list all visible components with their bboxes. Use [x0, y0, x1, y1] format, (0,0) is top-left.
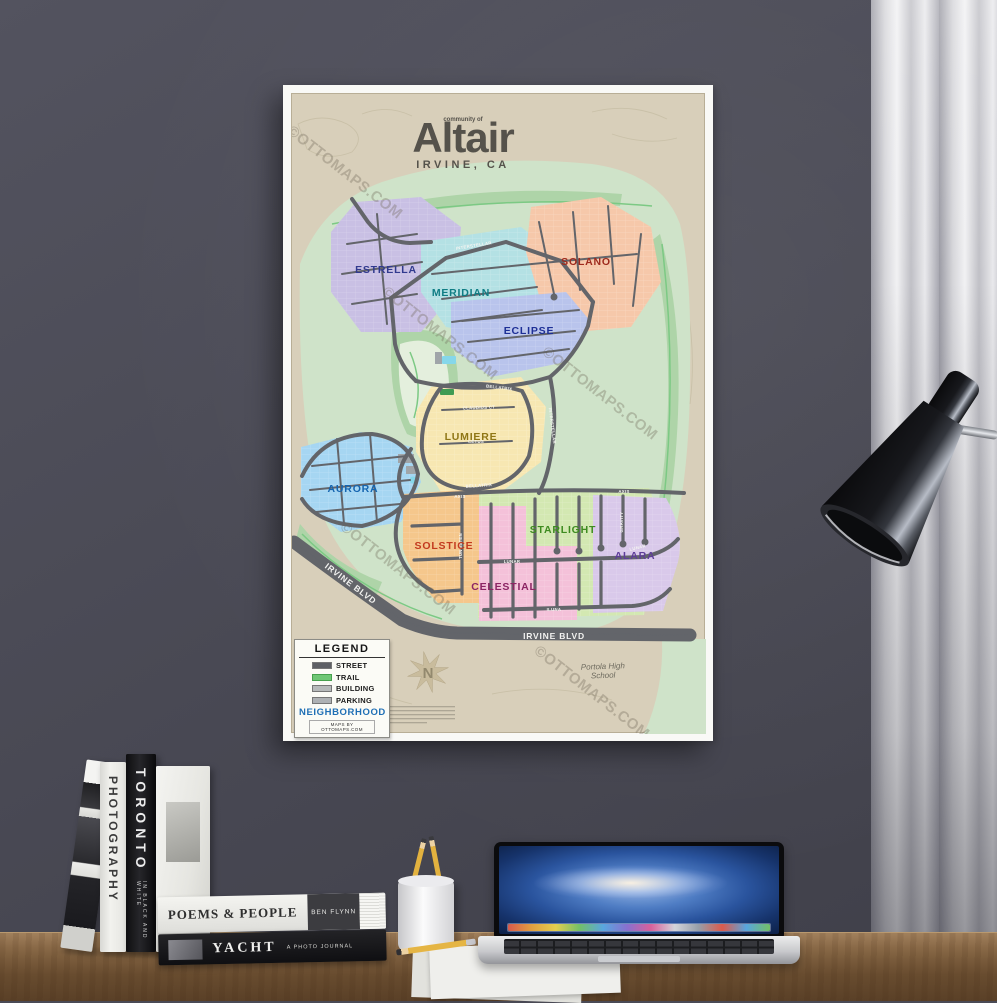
- label-aurora: AURORA: [328, 483, 379, 495]
- label-meridian: MERIDIAN: [432, 287, 490, 299]
- compass-n: N: [423, 665, 434, 682]
- book-yacht-photo: [168, 939, 202, 960]
- book-toronto-subtitle: IN BLACK AND WHITE: [135, 881, 147, 953]
- irvine-blvd-label: IRVINE BLVD: [523, 631, 585, 641]
- altair-map: INTERSTELLAR INTERSTELLAR AXIS AXIS LUNA…: [291, 93, 705, 733]
- map-poster: INTERSTELLAR INTERSTELLAR AXIS AXIS LUNA…: [283, 85, 713, 741]
- map-title: community of Altair IRVINE, CA: [412, 114, 514, 171]
- label-eclipse: ECLIPSE: [504, 325, 555, 337]
- watermark: ©OTTOMAPS.COM: [531, 642, 653, 734]
- legend-item-label: STREET: [336, 661, 367, 670]
- title-name: Altair: [412, 114, 514, 161]
- street-label: ILUNA: [547, 607, 562, 612]
- legend-item-parking: PARKING: [312, 696, 385, 705]
- laptop-base: [478, 936, 800, 964]
- compass-rose: N: [408, 652, 449, 693]
- building-swatch: [312, 685, 332, 692]
- title-location: IRVINE, CA: [416, 159, 509, 171]
- desk-lamp: [816, 350, 997, 605]
- label-solstice: SOLSTICE: [415, 540, 474, 552]
- street-label: AXIS: [454, 494, 465, 499]
- legend-item-building: BUILDING: [312, 684, 385, 693]
- street-label: AXIS: [618, 489, 629, 494]
- parking-swatch: [312, 697, 332, 704]
- legend-item-label: TRAIL: [336, 673, 360, 682]
- label-starlight: STARLIGHT: [530, 524, 597, 536]
- book-yacht-subtitle: A PHOTO JOURNAL: [287, 943, 354, 950]
- book-poems-author: BEN FLYNN: [307, 893, 360, 930]
- macbook-laptop: [478, 842, 800, 964]
- book-poems: POEMS & PEOPLE BEN FLYNN: [157, 893, 386, 934]
- macos-dock: [507, 923, 771, 932]
- book-yacht: YACHT A PHOTO JOURNAL: [158, 930, 387, 966]
- book-yacht-title: YACHT: [212, 939, 277, 956]
- label-celestial: CELESTIAL: [471, 581, 537, 593]
- disclaimer-text-block: [387, 706, 455, 723]
- stacked-books: POEMS & PEOPLE BEN FLYNN YACHT A PHOTO J…: [157, 893, 386, 966]
- laptop-keyboard: [504, 939, 774, 954]
- book-photography-title: PHOTOGRAPHY: [106, 776, 120, 903]
- book-photography: PHOTOGRAPHY: [100, 762, 126, 952]
- street-swatch: [312, 662, 332, 669]
- book-pages: [359, 893, 386, 930]
- label-lumiere: LUMIERE: [445, 431, 498, 443]
- street-label: LUNAR: [504, 559, 521, 564]
- legend-item-street: STREET: [312, 661, 385, 670]
- label-estrella: ESTRELLA: [355, 264, 417, 276]
- galaxy-wallpaper: [499, 846, 779, 934]
- label-alara: ALARA: [615, 550, 656, 562]
- trail-swatch: [312, 674, 332, 681]
- legend-item-label: BUILDING: [336, 684, 375, 693]
- book-toronto: TORONTO IN BLACK AND WHITE: [126, 754, 156, 952]
- street-label: GRAVITY: [619, 512, 624, 533]
- legend-item-trail: TRAIL: [312, 673, 385, 682]
- school-label: Portola High School: [570, 661, 637, 682]
- legend-credit: MAPS BY OTTOMAPS.COM: [309, 720, 375, 734]
- label-solano: SOLANO: [561, 256, 611, 268]
- map-legend: LEGEND STREET TRAIL BUILDING PARKING NEI…: [294, 639, 390, 738]
- book-toronto-title: TORONTO: [133, 768, 149, 873]
- legend-title: LEGEND: [299, 643, 385, 658]
- lamp-head: [816, 350, 997, 576]
- laptop-screen: [494, 842, 784, 938]
- legend-item-label: PARKING: [336, 696, 372, 705]
- legend-neighborhood-label: NEIGHBORHOOD: [299, 707, 385, 718]
- laptop-trackpad: [598, 956, 680, 962]
- book-poems-title: POEMS & PEOPLE: [158, 904, 308, 923]
